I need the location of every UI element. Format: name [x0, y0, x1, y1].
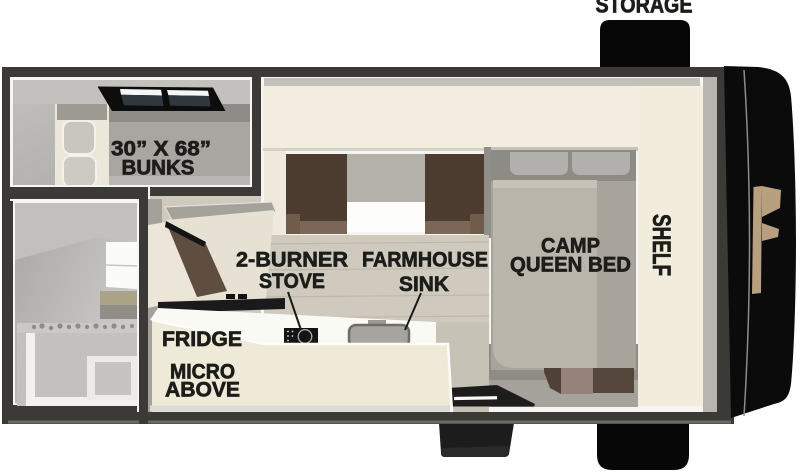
svg-text:ABOVE: ABOVE: [165, 379, 240, 402]
svg-text:SHELF: SHELF: [647, 214, 675, 276]
svg-text:BUNKS: BUNKS: [122, 157, 195, 180]
svg-text:FARMHOUSE: FARMHOUSE: [362, 249, 488, 272]
svg-text:STORAGE: STORAGE: [596, 0, 693, 18]
svg-text:SINK: SINK: [399, 273, 449, 296]
svg-text:QUEEN BED: QUEEN BED: [510, 253, 631, 276]
svg-text:2-BURNER: 2-BURNER: [236, 249, 348, 272]
svg-text:STOVE: STOVE: [259, 270, 325, 293]
svg-text:FRIDGE: FRIDGE: [162, 328, 242, 351]
